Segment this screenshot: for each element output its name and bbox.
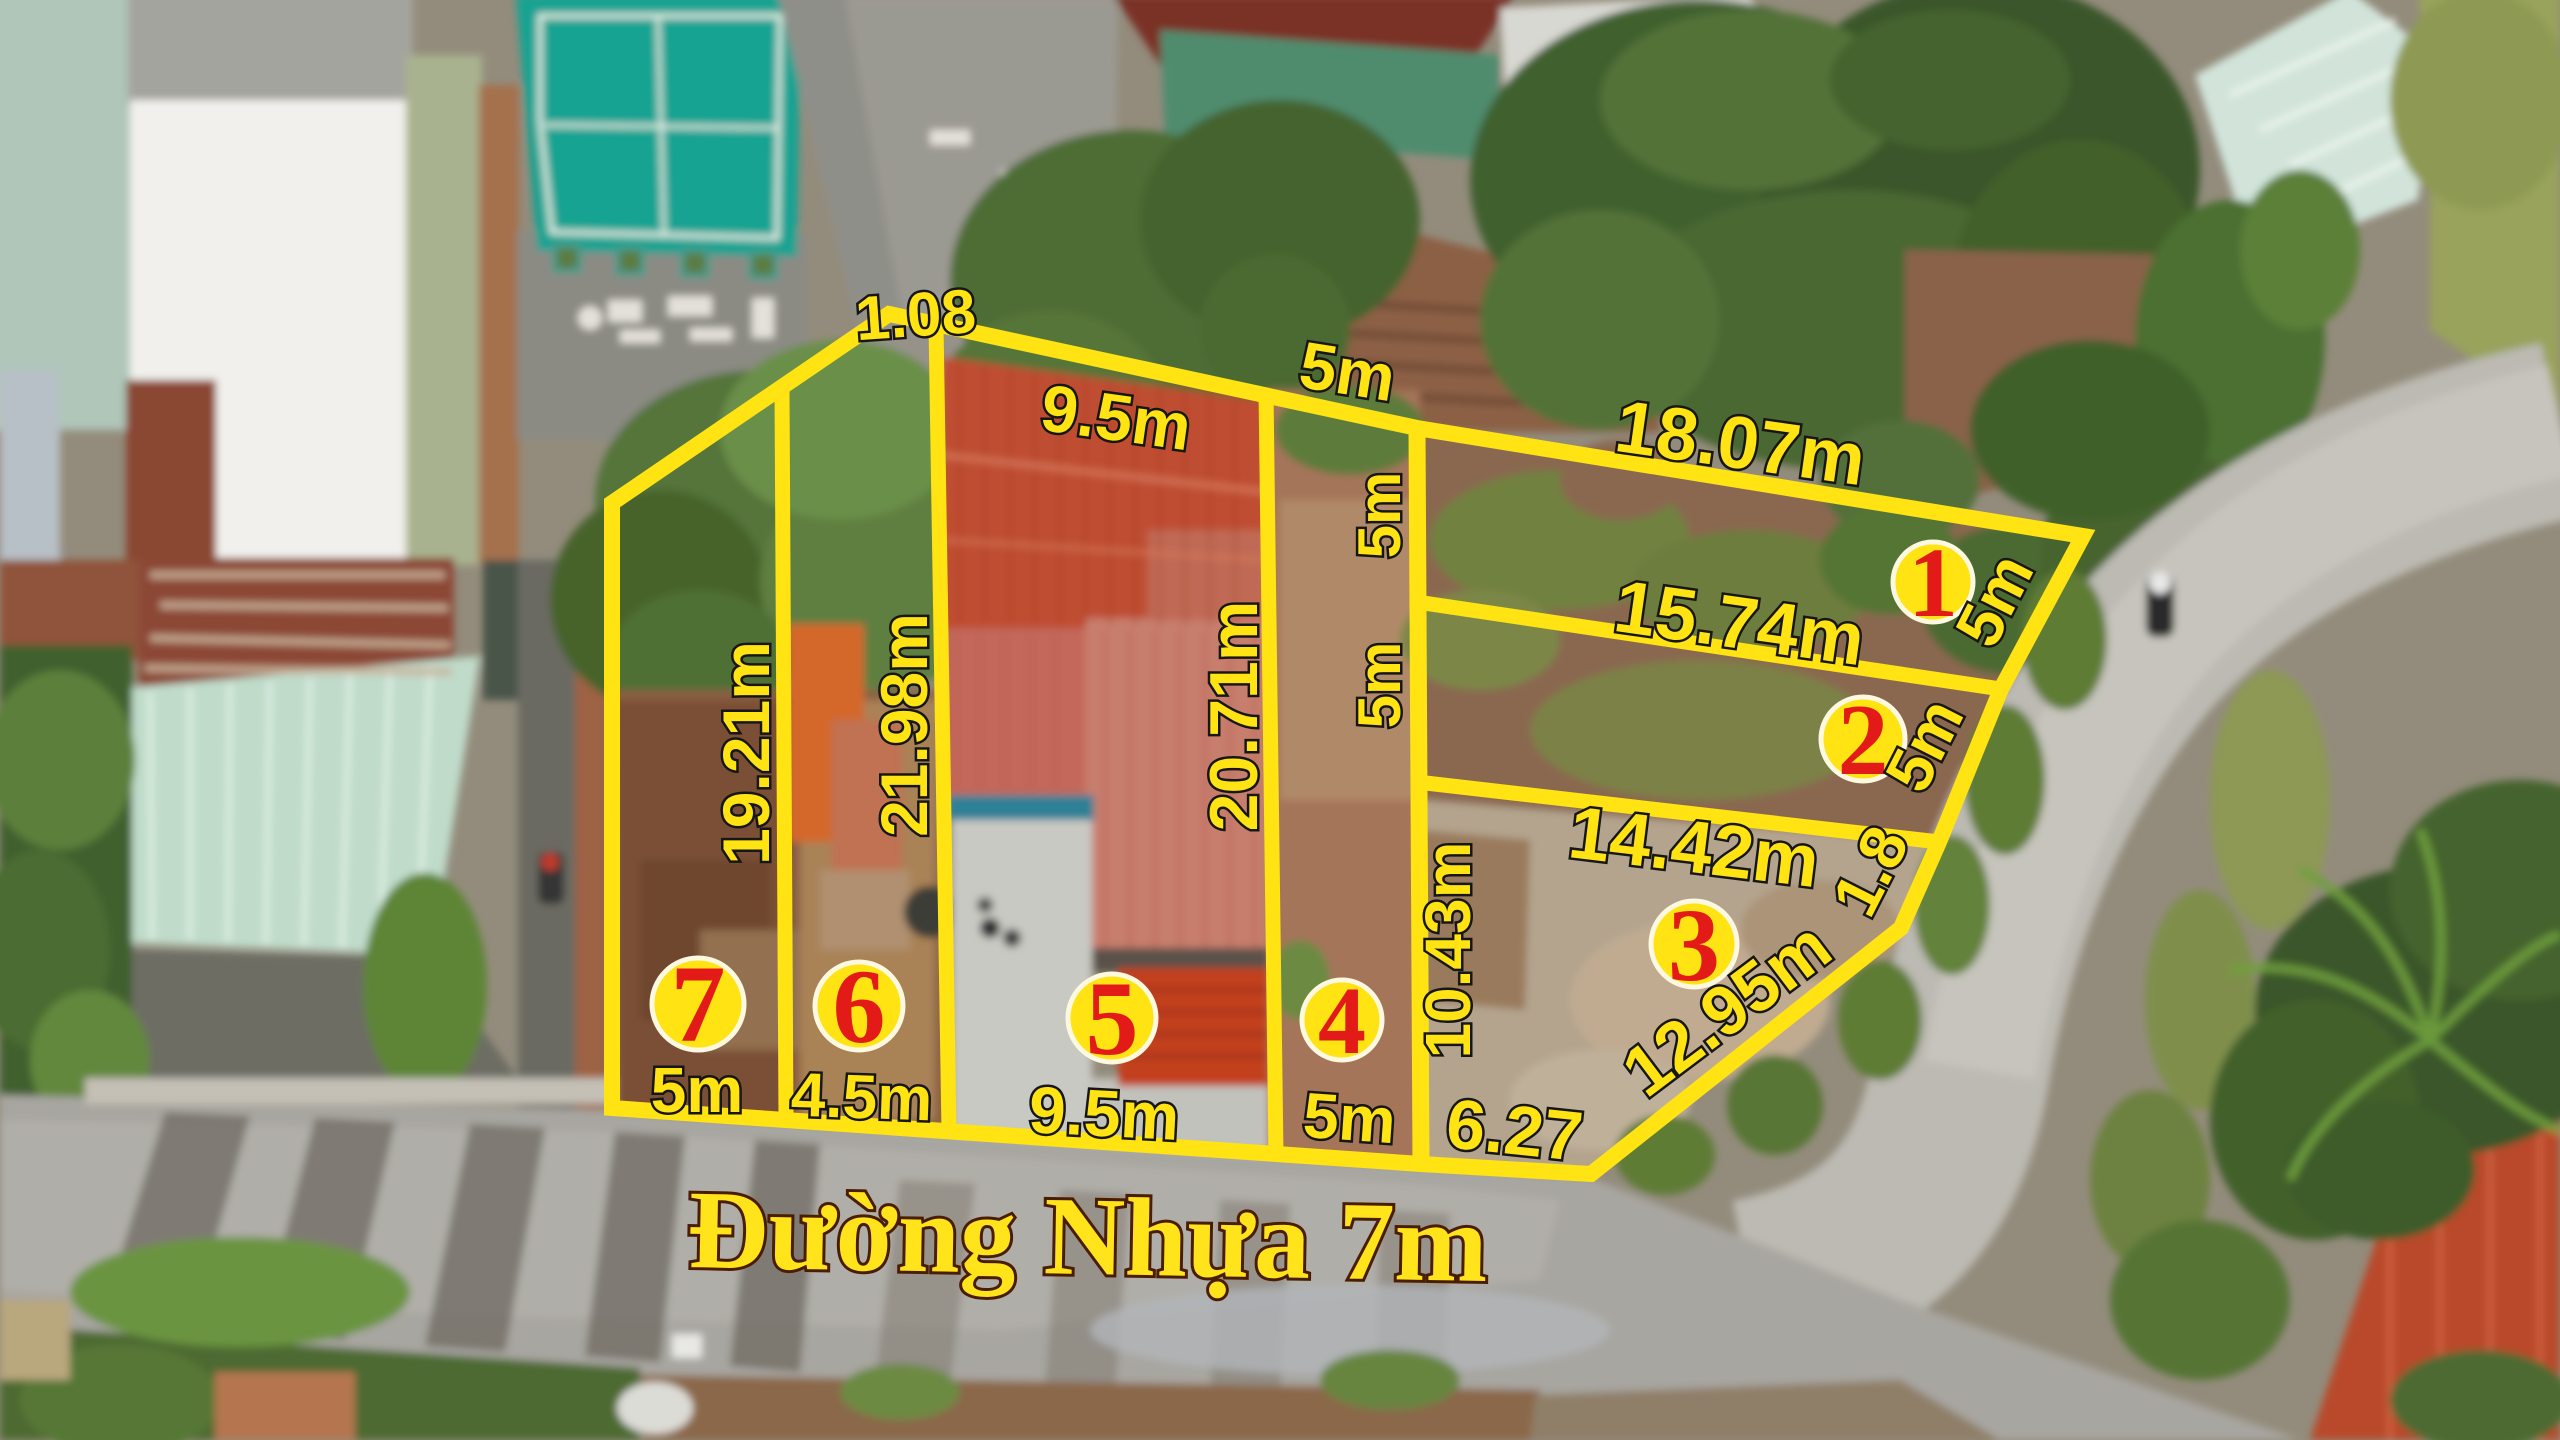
svg-text:19.21m: 19.21m bbox=[709, 641, 783, 865]
svg-text:6.27: 6.27 bbox=[1443, 1084, 1587, 1176]
svg-text:5m: 5m bbox=[1301, 1079, 1398, 1157]
svg-text:5m: 5m bbox=[1346, 642, 1413, 729]
svg-text:1.08: 1.08 bbox=[853, 277, 978, 354]
svg-text:4.5m: 4.5m bbox=[790, 1061, 934, 1135]
svg-text:20.71m: 20.71m bbox=[1196, 601, 1272, 832]
svg-text:Đường Nhựa 7m: Đường Nhựa 7m bbox=[687, 1168, 1489, 1306]
svg-text:7: 7 bbox=[671, 943, 726, 1065]
svg-text:4: 4 bbox=[1318, 967, 1366, 1074]
svg-text:5m: 5m bbox=[1295, 327, 1401, 415]
svg-text:2: 2 bbox=[1838, 684, 1889, 797]
svg-text:5: 5 bbox=[1086, 960, 1139, 1077]
svg-text:21.98m: 21.98m bbox=[867, 613, 941, 837]
svg-text:6: 6 bbox=[833, 948, 886, 1065]
svg-text:10.43m: 10.43m bbox=[1412, 841, 1484, 1058]
svg-text:5m: 5m bbox=[651, 1054, 744, 1126]
svg-text:9.5m: 9.5m bbox=[1027, 1072, 1181, 1154]
svg-text:5m: 5m bbox=[1346, 472, 1413, 559]
